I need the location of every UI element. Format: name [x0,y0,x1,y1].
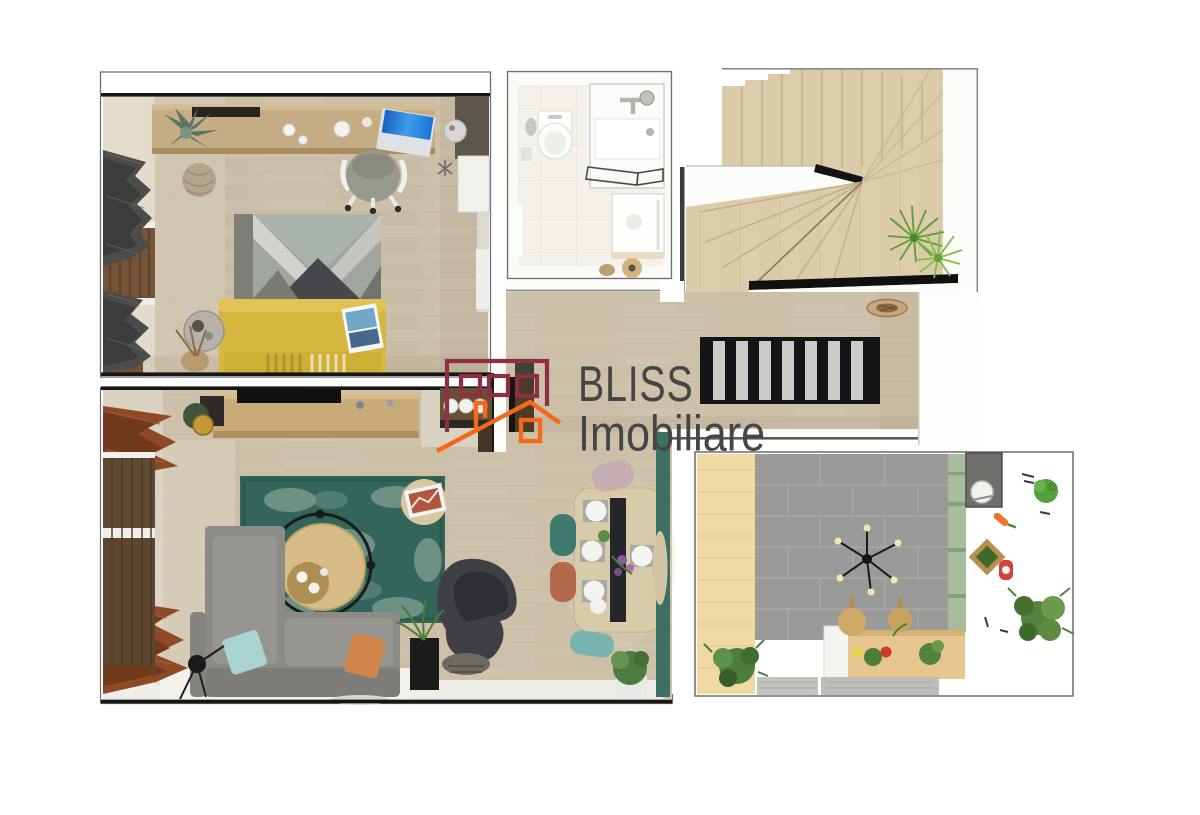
svg-text:Imobiliare: Imobiliare [578,404,765,461]
